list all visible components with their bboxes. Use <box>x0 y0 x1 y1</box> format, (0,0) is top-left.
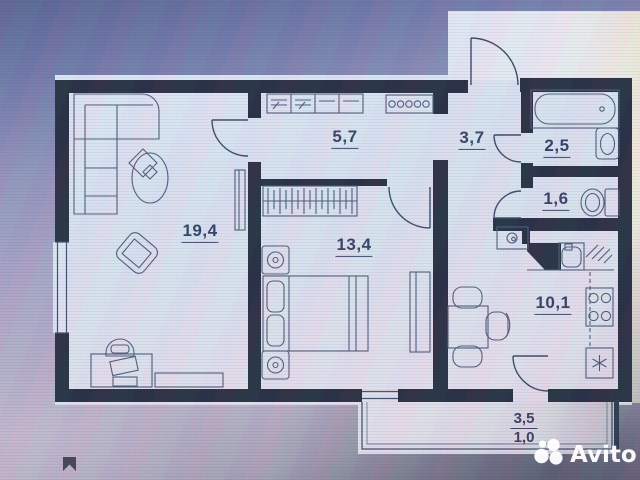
room-area-living-room: 19,4 <box>181 221 218 243</box>
nightstand-icon <box>262 246 289 274</box>
room-area-toilet: 1,6 <box>542 189 569 211</box>
clothes-rail-icon <box>263 186 357 216</box>
washbasin-icon <box>596 128 619 159</box>
avito-wordmark: Avito <box>570 444 637 469</box>
desk-icon <box>91 354 152 387</box>
balcony-area-total: 3,5 <box>511 411 538 429</box>
avito-logo-icon <box>532 435 565 469</box>
armchair-icon <box>114 230 161 276</box>
toilet-icon <box>581 189 619 216</box>
bathroom-door <box>494 135 521 162</box>
washing-machine-icon <box>586 348 613 378</box>
toilet-door <box>494 191 521 218</box>
tall-cabinet-icon <box>235 170 245 230</box>
vent-shaft <box>527 243 561 270</box>
room-area-bathroom: 2,5 <box>543 136 570 158</box>
floor-plan-drawing <box>0 0 640 480</box>
balcony-door <box>513 356 548 391</box>
bedroom-door <box>389 187 430 228</box>
room-area-kitchen: 10,1 <box>534 293 571 315</box>
coat-hooks-icon <box>386 95 433 113</box>
avito-watermark: Avito <box>532 435 637 469</box>
double-bed-icon <box>263 276 368 351</box>
room-area-bedroom: 13,4 <box>335 235 372 257</box>
coffee-table-icon <box>129 149 168 203</box>
windows <box>53 242 398 402</box>
kitchen-sink-icon <box>559 243 584 270</box>
hall-wardrobe-icon <box>267 94 363 113</box>
floor-plan-photo: 19,4 5,7 3,7 2,5 1,6 13,4 10,1 3,5 1,0 A… <box>0 0 640 480</box>
living-room-door <box>212 120 248 156</box>
tv-stand-icon <box>155 373 223 387</box>
entrance-door <box>471 38 518 85</box>
room-area-hallway: 5,7 <box>331 127 358 149</box>
room-area-entrance-hall: 3,7 <box>458 128 485 150</box>
nightstand-icon <box>262 351 289 379</box>
dish-drainer-icon <box>586 245 612 263</box>
dining-table-icon <box>448 306 488 348</box>
dining-chair-icon <box>453 287 510 367</box>
bathtub-icon <box>531 90 619 128</box>
bedroom-wardrobe-icon <box>410 272 430 352</box>
photo-artifact-mark <box>63 457 76 471</box>
